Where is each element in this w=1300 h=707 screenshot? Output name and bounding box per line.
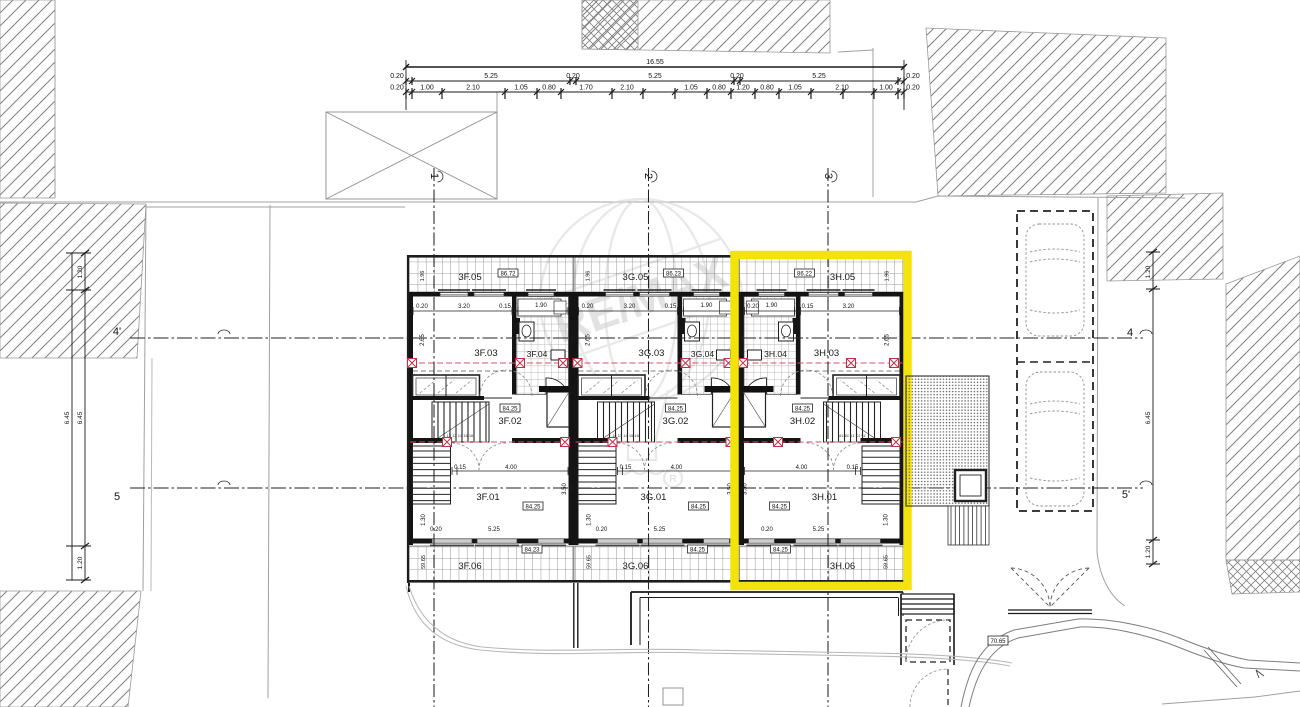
svg-text:0.15: 0.15 [847, 465, 859, 471]
svg-text:1.20: 1.20 [77, 265, 84, 278]
svg-text:3.50: 3.50 [562, 483, 568, 495]
svg-text:0.20: 0.20 [906, 73, 920, 80]
svg-text:86.72: 86.72 [500, 272, 516, 278]
svg-text:0.20: 0.20 [430, 527, 442, 533]
svg-text:59.65: 59.65 [587, 555, 593, 569]
svg-text:3F.06: 3F.06 [458, 561, 481, 572]
svg-text:0.80: 0.80 [760, 85, 774, 92]
svg-text:1.20: 1.20 [1145, 545, 1152, 558]
svg-text:0.20: 0.20 [416, 304, 428, 310]
svg-text:4: 4 [1127, 327, 1133, 339]
svg-text:5.25: 5.25 [488, 527, 500, 533]
svg-text:0.15: 0.15 [665, 304, 677, 310]
svg-text:86.22: 86.22 [797, 272, 813, 278]
svg-text:1.20: 1.20 [77, 556, 84, 569]
svg-text:5.25: 5.25 [648, 73, 662, 80]
svg-text:1.96: 1.96 [420, 271, 426, 282]
svg-text:0.20: 0.20 [730, 73, 744, 80]
svg-text:5.25: 5.25 [813, 527, 825, 533]
svg-text:0.80: 0.80 [712, 85, 726, 92]
svg-text:3H.02: 3H.02 [790, 416, 815, 427]
svg-text:3G.01: 3G.01 [641, 492, 667, 503]
svg-text:2.10: 2.10 [620, 85, 634, 92]
svg-text:3.20: 3.20 [458, 304, 470, 310]
svg-text:84.25: 84.25 [773, 548, 789, 554]
svg-text:3F.05: 3F.05 [458, 272, 481, 283]
svg-text:4.00: 4.00 [671, 465, 683, 471]
svg-text:0.20: 0.20 [906, 85, 920, 92]
svg-text:3F.02: 3F.02 [498, 416, 521, 427]
svg-text:0.20: 0.20 [390, 85, 404, 92]
svg-text:3H.06: 3H.06 [830, 561, 855, 572]
svg-text:0.20: 0.20 [596, 527, 608, 533]
svg-text:2.65: 2.65 [420, 334, 426, 346]
svg-text:84.25: 84.25 [772, 505, 788, 511]
svg-text:3G.03: 3G.03 [639, 348, 665, 359]
svg-text:3F.03: 3F.03 [474, 348, 497, 359]
svg-text:84.25: 84.25 [691, 505, 707, 511]
svg-text:84.23: 84.23 [524, 548, 540, 554]
svg-text:1.30: 1.30 [421, 514, 427, 526]
svg-text:59.65: 59.65 [884, 555, 890, 569]
svg-text:2.10: 2.10 [466, 85, 480, 92]
svg-text:3F.04: 3F.04 [527, 349, 548, 359]
svg-text:1.70: 1.70 [579, 85, 593, 92]
svg-text:3F.01: 3F.01 [476, 492, 499, 503]
svg-text:5.25: 5.25 [812, 73, 826, 80]
svg-text:2.10: 2.10 [835, 85, 849, 92]
svg-text:1.20: 1.20 [1145, 265, 1152, 278]
svg-text:6.45: 6.45 [1145, 411, 1152, 424]
svg-text:0.20: 0.20 [566, 73, 580, 80]
svg-text:0.15: 0.15 [620, 465, 632, 471]
svg-text:5.25: 5.25 [654, 527, 666, 533]
svg-text:0.20: 0.20 [582, 304, 594, 310]
svg-text:3.50: 3.50 [743, 483, 749, 495]
svg-text:3G.02: 3G.02 [663, 416, 689, 427]
svg-text:0.20: 0.20 [747, 304, 759, 310]
svg-text:4.00: 4.00 [796, 465, 808, 471]
svg-text:0.80: 0.80 [542, 85, 556, 92]
svg-text:84.25: 84.25 [690, 548, 706, 554]
svg-text:3H.01: 3H.01 [812, 492, 837, 503]
svg-text:1.30: 1.30 [884, 514, 890, 526]
svg-text:1.30: 1.30 [587, 514, 593, 526]
svg-text:3H.03: 3H.03 [814, 348, 839, 359]
svg-text:84.25: 84.25 [525, 505, 541, 511]
svg-text:5': 5' [1122, 489, 1130, 501]
svg-text:0.15: 0.15 [454, 465, 466, 471]
svg-text:1.05: 1.05 [684, 85, 698, 92]
svg-text:86.23: 86.23 [666, 272, 682, 278]
svg-text:1.05: 1.05 [788, 85, 802, 92]
svg-text:3G.04: 3G.04 [691, 349, 714, 359]
svg-text:84.25: 84.25 [795, 407, 811, 413]
svg-text:59.65: 59.65 [421, 555, 427, 569]
svg-text:3.20: 3.20 [624, 304, 636, 310]
svg-text:3H.04: 3H.04 [764, 349, 787, 359]
svg-text:1.20: 1.20 [736, 85, 750, 92]
svg-text:3H.05: 3H.05 [830, 272, 855, 283]
svg-text:6.45: 6.45 [64, 411, 71, 424]
svg-text:1.05: 1.05 [514, 85, 528, 92]
svg-text:84.25: 84.25 [668, 407, 684, 413]
svg-text:84.25: 84.25 [502, 407, 518, 413]
svg-text:3G.05: 3G.05 [623, 272, 649, 283]
svg-text:4': 4' [113, 326, 121, 338]
svg-text:2.65: 2.65 [885, 334, 891, 346]
svg-text:1.90: 1.90 [766, 303, 778, 309]
svg-text:6.45: 6.45 [77, 411, 84, 424]
svg-text:1.00: 1.00 [879, 85, 893, 92]
svg-text:1.00: 1.00 [420, 85, 434, 92]
svg-text:1.90: 1.90 [535, 303, 547, 309]
svg-text:1.90: 1.90 [701, 303, 713, 309]
svg-text:0.20: 0.20 [390, 73, 404, 80]
svg-text:4.00: 4.00 [505, 465, 517, 471]
svg-text:2.65: 2.65 [586, 334, 592, 346]
svg-text:0.20: 0.20 [761, 527, 773, 533]
svg-text:1.96: 1.96 [586, 271, 592, 282]
svg-text:3.20: 3.20 [843, 304, 855, 310]
svg-text:5: 5 [114, 491, 120, 503]
svg-text:3G.06: 3G.06 [623, 561, 649, 572]
svg-text:0.15: 0.15 [802, 304, 814, 310]
svg-text:0.15: 0.15 [499, 304, 511, 310]
svg-text:70.65: 70.65 [990, 639, 1006, 645]
svg-text:16.55: 16.55 [646, 59, 664, 66]
svg-text:1.96: 1.96 [885, 271, 891, 282]
svg-text:5.25: 5.25 [484, 73, 498, 80]
svg-text:R: R [669, 474, 676, 485]
